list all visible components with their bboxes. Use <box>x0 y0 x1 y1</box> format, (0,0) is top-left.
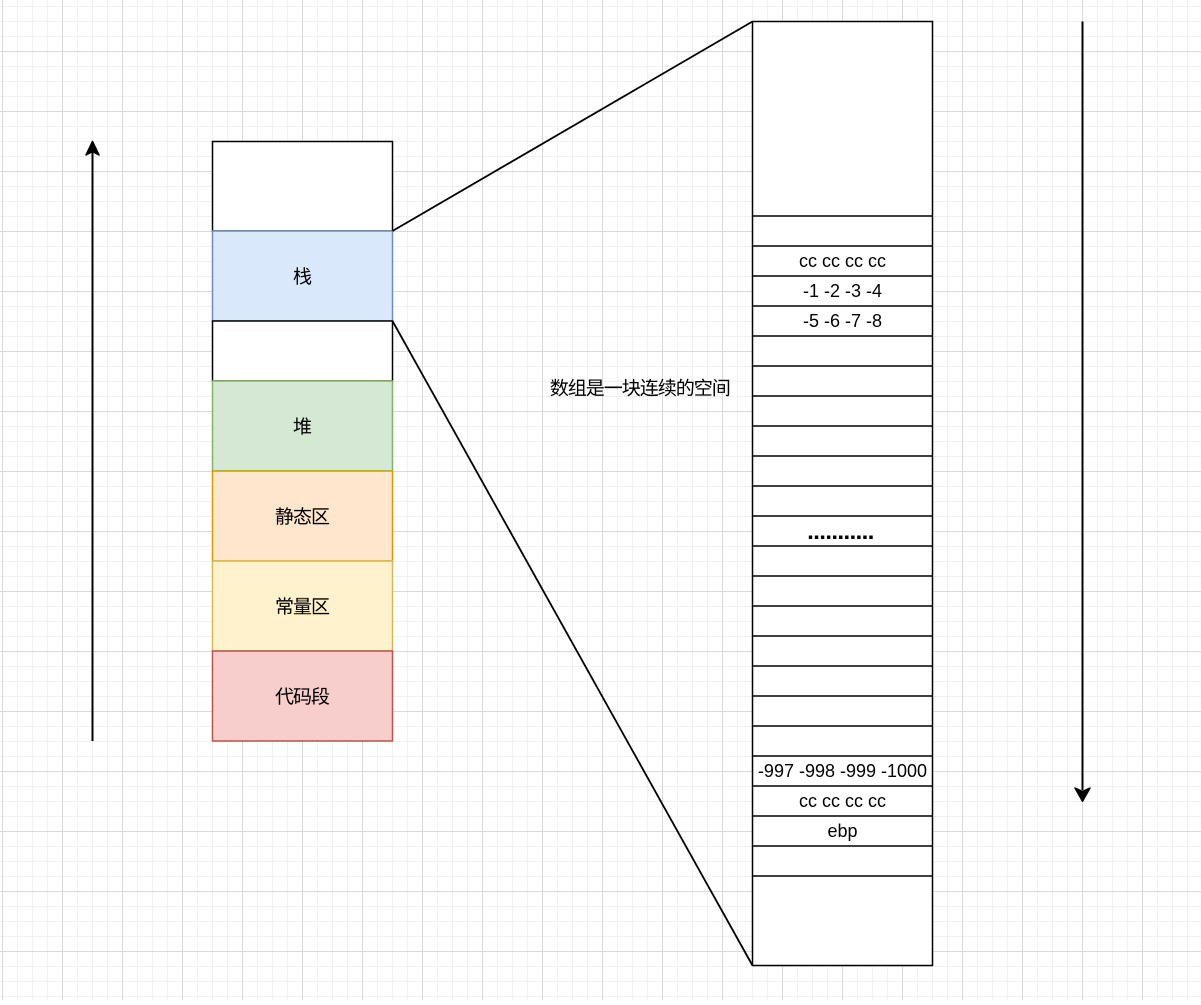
svg-text:-997 -998 -999 -1000: -997 -998 -999 -1000 <box>758 761 927 781</box>
svg-text:cc cc cc cc: cc cc cc cc <box>799 251 886 271</box>
svg-text:ebp: ebp <box>827 821 857 841</box>
svg-text:cc cc cc cc: cc cc cc cc <box>799 791 886 811</box>
svg-text:-5 -6 -7 -8: -5 -6 -7 -8 <box>803 311 882 331</box>
svg-text:-1 -2 -3 -4: -1 -2 -3 -4 <box>803 281 882 301</box>
